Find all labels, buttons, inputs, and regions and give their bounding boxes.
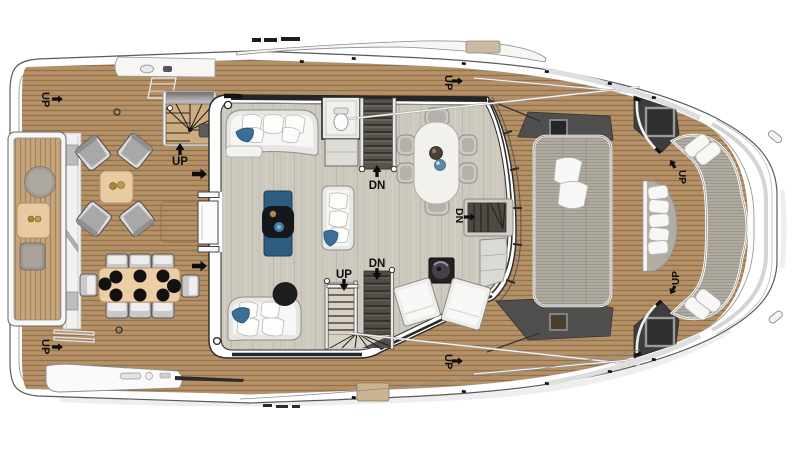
svg-text:DN: DN — [453, 208, 465, 223]
svg-text:UP: UP — [336, 269, 352, 281]
svg-text:DN: DN — [369, 258, 386, 270]
svg-text:UP: UP — [676, 170, 687, 184]
svg-text:UP: UP — [39, 92, 51, 107]
svg-text:UP: UP — [172, 156, 188, 168]
svg-text:DN: DN — [369, 180, 386, 192]
svg-text:UP: UP — [39, 339, 51, 354]
svg-text:UP: UP — [442, 75, 454, 90]
svg-text:UP: UP — [671, 271, 682, 285]
